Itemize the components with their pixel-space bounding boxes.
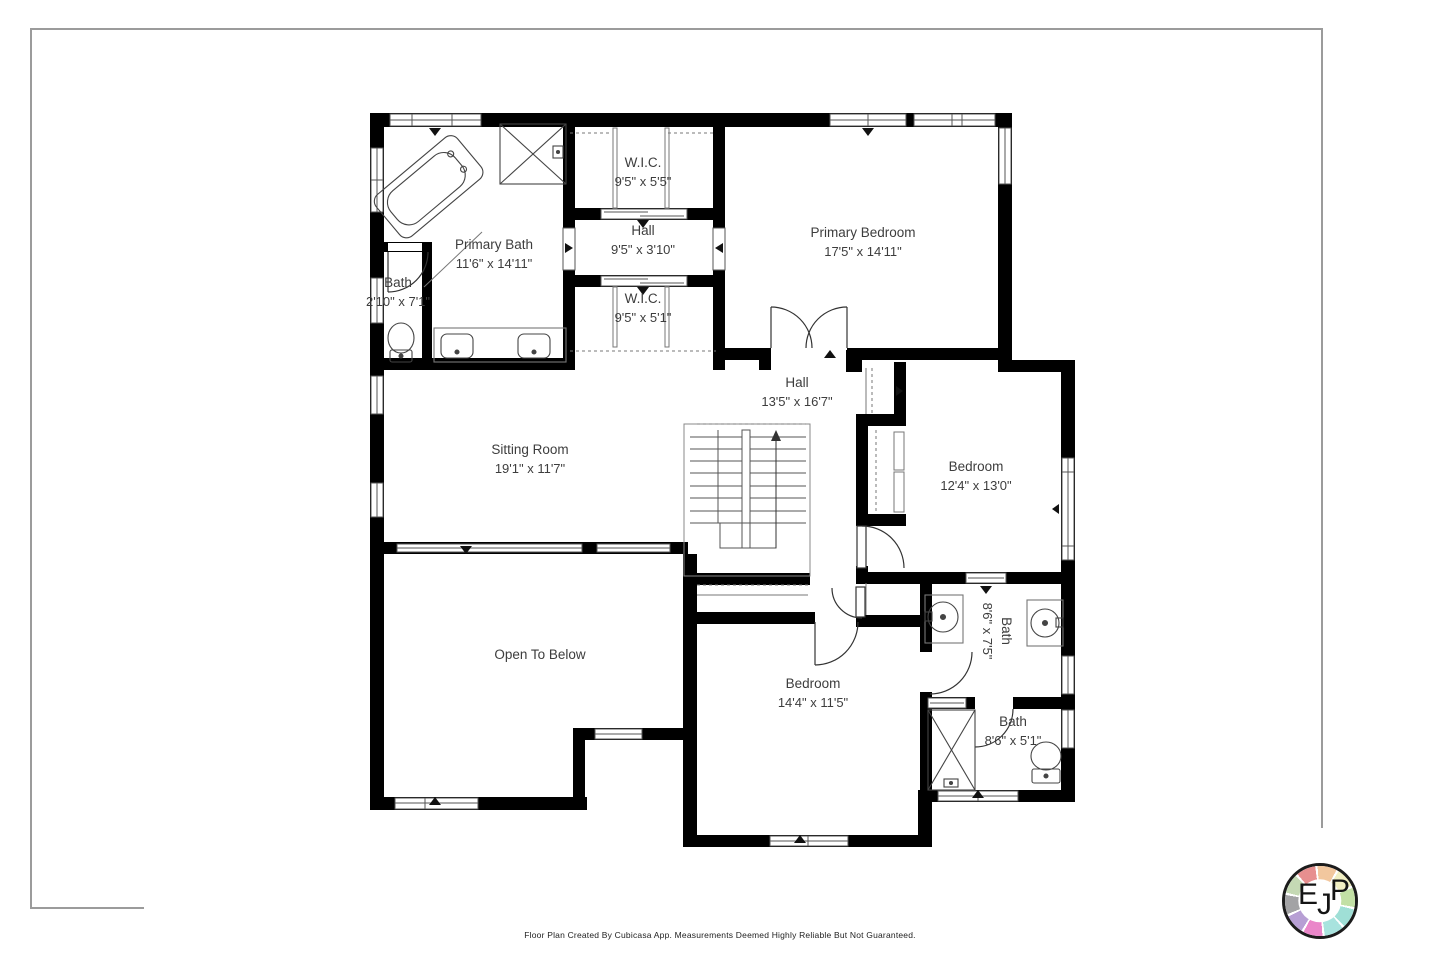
bath-south-door bbox=[975, 709, 1013, 747]
bath-jj-door bbox=[930, 652, 972, 694]
bedroom-south-door bbox=[815, 622, 858, 665]
walls-layer bbox=[370, 113, 1075, 847]
toilet-small-bath bbox=[388, 323, 414, 362]
floor-plan-page: W.I.C.9'5" x 5'5" Hall9'5" x 3'10" W.I.C… bbox=[0, 0, 1440, 960]
doors-layer bbox=[388, 252, 1013, 747]
bedroom-east-door bbox=[857, 526, 904, 568]
closet-details-layer bbox=[424, 128, 904, 615]
vanity-primary bbox=[434, 328, 566, 362]
logo-letters: E J P bbox=[1285, 866, 1355, 936]
toilet-south-bath bbox=[1031, 742, 1061, 783]
footer-disclaimer: Floor Plan Created By Cubicasa App. Meas… bbox=[524, 930, 915, 940]
vestibule-door bbox=[832, 587, 865, 618]
shower-primary bbox=[500, 124, 566, 184]
ejp-logo: E J P bbox=[1282, 863, 1358, 939]
primary-bedroom-french-doors bbox=[771, 307, 847, 348]
shower-south-bath bbox=[928, 710, 975, 790]
staircase bbox=[684, 424, 810, 576]
sink-jj-right bbox=[1027, 600, 1063, 646]
logo-letter-e: E bbox=[1298, 880, 1318, 910]
logo-letter-p: P bbox=[1330, 876, 1350, 906]
stairs-up-arrow bbox=[771, 430, 781, 548]
bathtub bbox=[371, 132, 487, 242]
floor-plan-drawing bbox=[0, 0, 1440, 960]
